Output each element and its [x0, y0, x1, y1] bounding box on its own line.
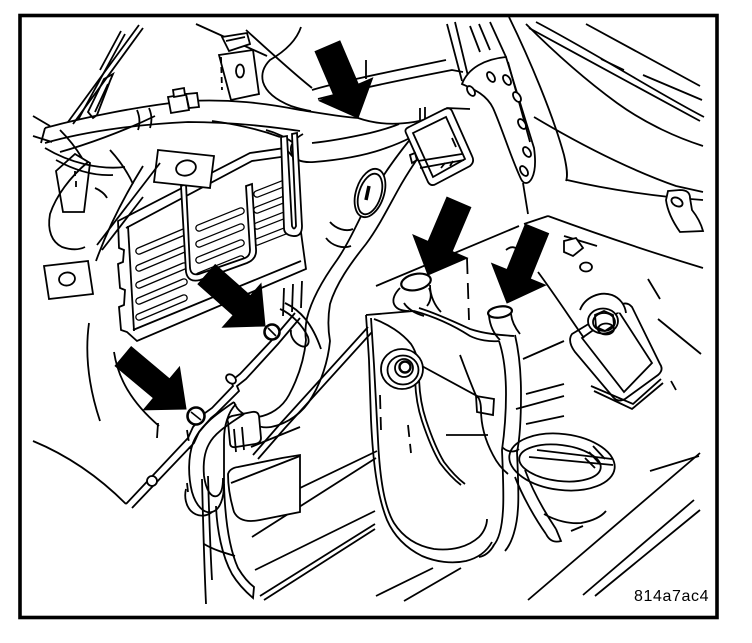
- svg-text:814a7ac4: 814a7ac4: [634, 588, 709, 605]
